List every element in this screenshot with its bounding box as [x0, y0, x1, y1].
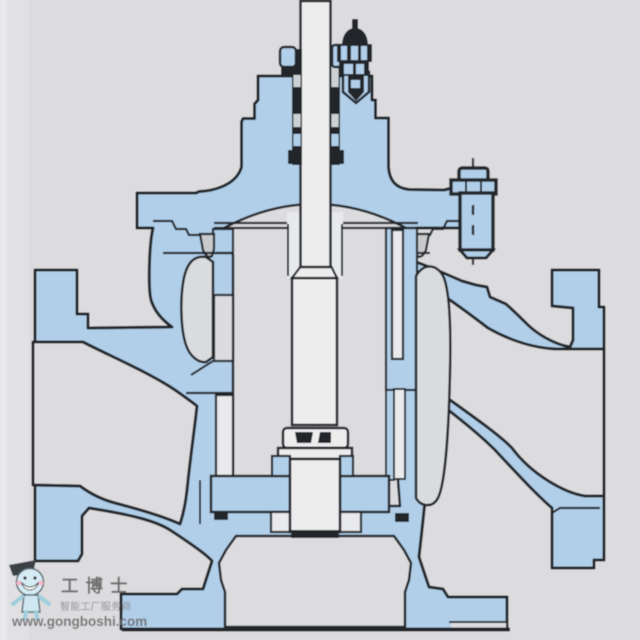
svg-text:www.gongboshi.com: www.gongboshi.com: [11, 614, 147, 629]
svg-text:工博士: 工博士: [61, 576, 135, 596]
svg-text:智能工厂服务商: 智能工厂服务商: [60, 600, 131, 613]
